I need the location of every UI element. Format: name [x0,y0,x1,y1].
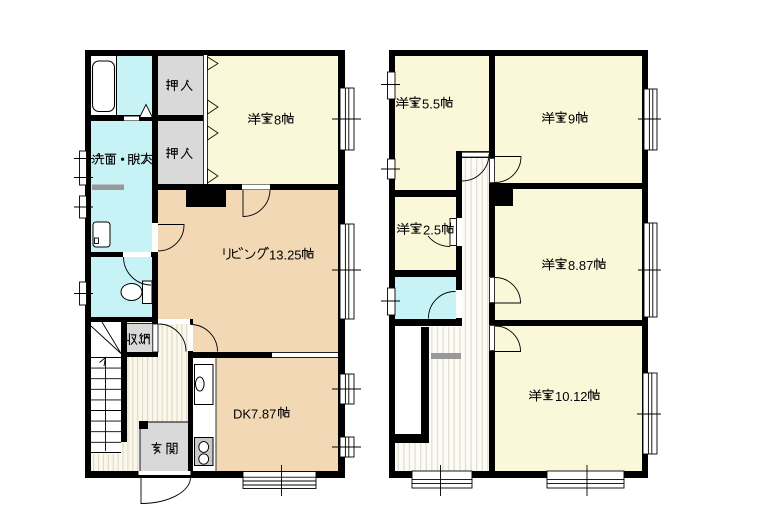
svg-text:10.12: 10.12 [555,389,588,404]
svg-text:DK7.87: DK7.87 [233,407,276,422]
svg-text:8.87: 8.87 [568,258,593,273]
svg-text:9: 9 [568,112,575,127]
svg-text:8: 8 [274,113,281,128]
svg-text:13.25: 13.25 [269,248,302,263]
svg-text:5.5: 5.5 [422,97,440,112]
svg-text:2.5: 2.5 [423,223,441,238]
